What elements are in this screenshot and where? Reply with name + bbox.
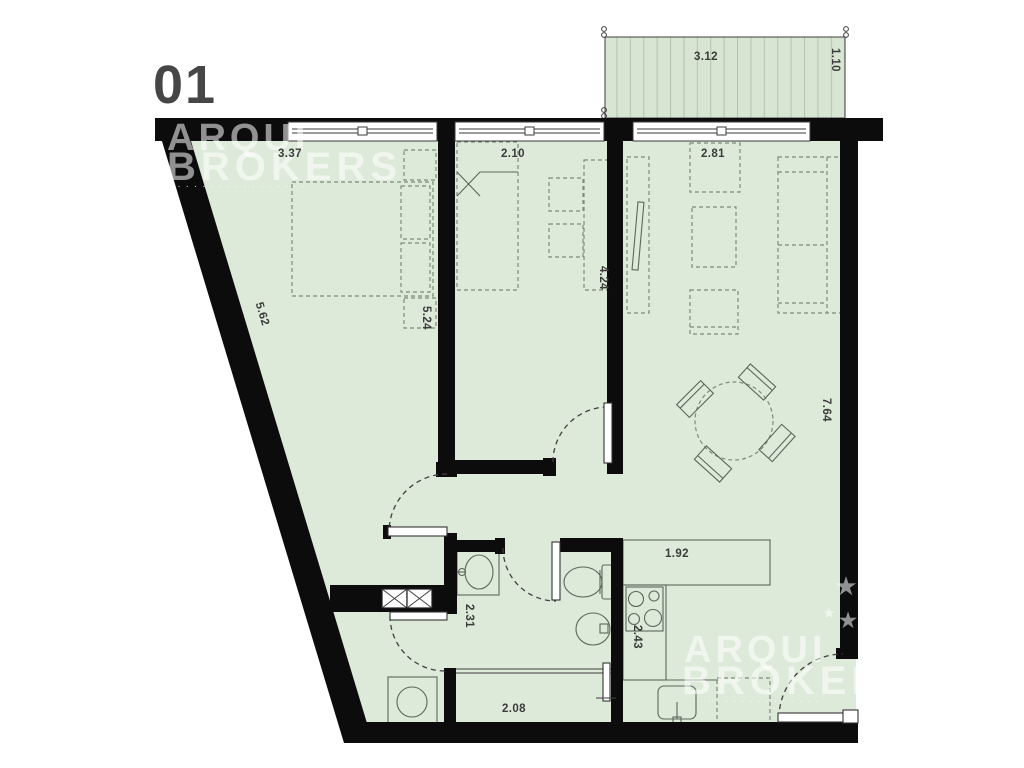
dim-balcony-depth: 1.10 — [829, 48, 841, 72]
dim-kitchen-depth: 2.43 — [631, 625, 643, 649]
balcony — [602, 27, 849, 119]
watermark-tagline-1: · · · · · · · · · · · · · · · · — [178, 184, 306, 191]
wall-wc-kitchen — [611, 538, 623, 722]
watermark-brand-4: BROKERS — [682, 659, 917, 703]
watermark-tagline-2: · · · · · · · · · · · · · · · · — [692, 699, 820, 706]
wall-bedroom2-bottom-cap — [543, 458, 556, 476]
window-bedroom2 — [455, 122, 604, 141]
dim-hall-width: 2.08 — [502, 703, 526, 715]
watermark-star-3: ★ — [838, 607, 859, 633]
wall-entry-cap — [836, 648, 858, 659]
windows — [288, 122, 810, 141]
dim-bathroom-depth: 2.31 — [463, 604, 475, 628]
dim-bedroom2-depth: 4.24 — [597, 266, 609, 290]
window-living — [633, 122, 810, 141]
wall-laundry-hall — [444, 668, 456, 722]
dim-living-depth: 7.64 — [820, 398, 832, 422]
wall-bedroom1-cap — [436, 462, 457, 477]
floorplan-drawing: ARQUI BROKERS · · · · · · · · · · · · · … — [0, 0, 1024, 768]
dim-bedroom2-width: 2.10 — [501, 148, 525, 160]
unit-number: 01 — [153, 55, 217, 115]
wall-bottom — [344, 722, 858, 743]
dim-bedroom1-depth: 5.24 — [420, 306, 432, 330]
duct-shaft — [382, 589, 432, 608]
dim-kitchen-counter: 1.92 — [665, 548, 689, 560]
watermark-star-2: ★ — [822, 605, 835, 622]
floorplan-page: ARQUI BROKERS · · · · · · · · · · · · · … — [0, 0, 1024, 768]
watermark-star-1: ★ — [834, 571, 857, 601]
dim-balcony-width: 3.12 — [694, 51, 718, 63]
window-bedroom1 — [288, 122, 437, 141]
balcony-decking — [605, 37, 845, 118]
dim-bedroom1-width: 3.37 — [278, 148, 302, 160]
wall-bedroom1-bedroom2 — [438, 140, 455, 474]
wall-bedroom2-bottom — [455, 460, 553, 474]
wall-bathroom-top — [457, 540, 497, 552]
dim-living-width: 2.81 — [701, 148, 725, 160]
